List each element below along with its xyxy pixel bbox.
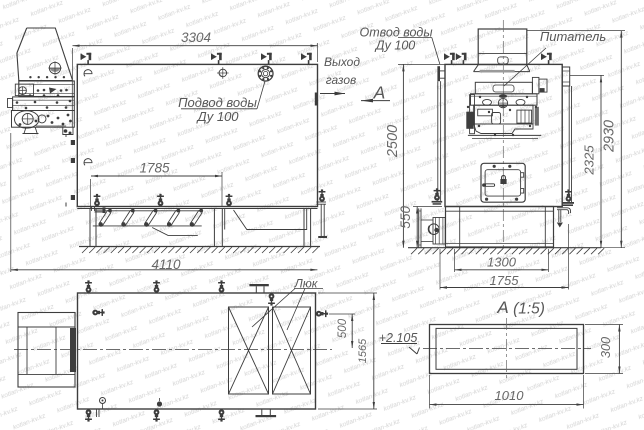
svg-text:2500: 2500: [385, 125, 401, 158]
svg-text:3304: 3304: [181, 30, 211, 45]
svg-text:(1:5): (1:5): [513, 301, 545, 318]
svg-text:Ду 100: Ду 100: [374, 38, 416, 52]
svg-text:Ду 100: Ду 100: [195, 109, 239, 124]
svg-text:1785: 1785: [139, 161, 170, 176]
svg-text:2930: 2930: [602, 120, 618, 153]
svg-text:1300: 1300: [487, 255, 517, 270]
svg-text:500: 500: [337, 318, 349, 338]
svg-text:+2.105: +2.105: [379, 331, 418, 345]
svg-text:Выход: Выход: [324, 55, 360, 69]
svg-text:2325: 2325: [582, 145, 597, 176]
svg-text:1565: 1565: [357, 338, 369, 363]
svg-text:300: 300: [599, 337, 613, 358]
svg-text:Подвод воды: Подвод воды: [178, 95, 257, 110]
svg-text:Питатель: Питатель: [540, 29, 607, 44]
svg-text:А: А: [496, 298, 508, 317]
svg-text:550: 550: [398, 206, 413, 229]
svg-text:1755: 1755: [490, 273, 520, 288]
svg-text:4110: 4110: [151, 257, 181, 272]
svg-text:1010: 1010: [495, 388, 525, 403]
svg-text:газов: газов: [326, 73, 357, 87]
svg-text:А: А: [373, 82, 386, 102]
